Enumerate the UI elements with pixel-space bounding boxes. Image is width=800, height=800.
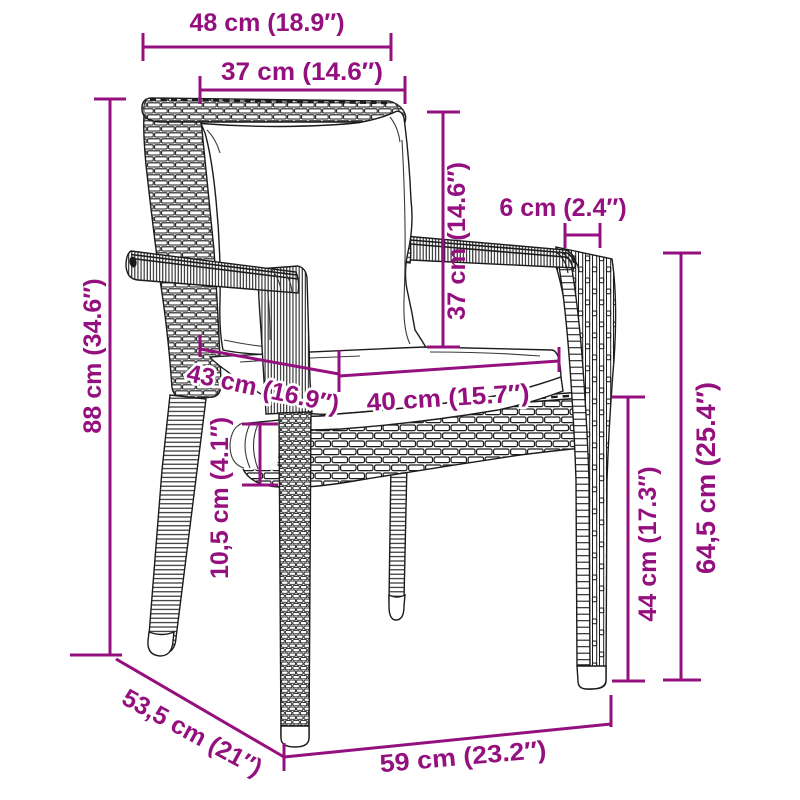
svg-text:10,5 cm (4.1″): 10,5 cm (4.1″)	[206, 417, 234, 579]
svg-text:6 cm (2.4″): 6 cm (2.4″)	[499, 194, 626, 222]
svg-text:44 cm (17.3″): 44 cm (17.3″)	[634, 466, 662, 621]
svg-text:64,5 cm (25.4″): 64,5 cm (25.4″)	[691, 382, 721, 574]
svg-text:37 cm (14.6″): 37 cm (14.6″)	[443, 162, 471, 320]
svg-text:48 cm (18.9″): 48 cm (18.9″)	[189, 9, 344, 37]
svg-text:37 cm (14.6″): 37 cm (14.6″)	[221, 58, 383, 86]
svg-text:88 cm (34.6″): 88 cm (34.6″)	[79, 278, 107, 433]
